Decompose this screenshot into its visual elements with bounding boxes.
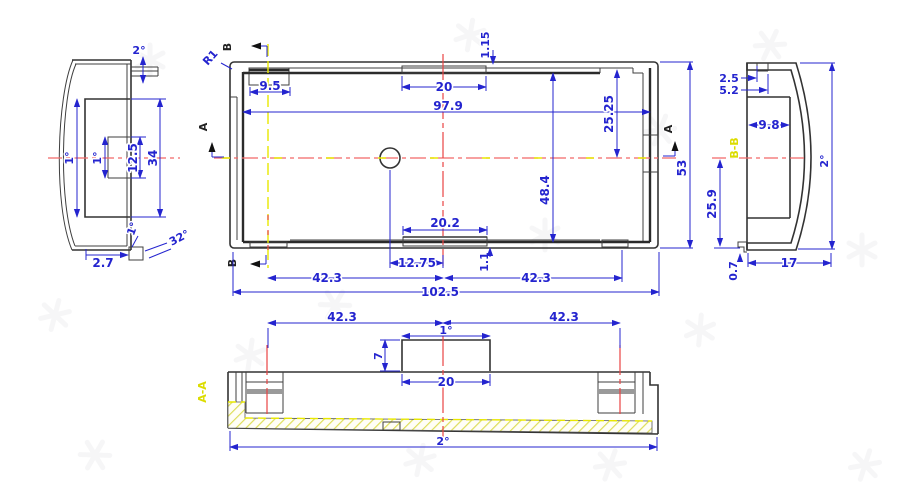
right-section-name-label: B-B (728, 137, 741, 158)
main-notch-width-label: 9.5 (259, 79, 280, 93)
main-overall-width-label: 102.5 (421, 285, 459, 299)
section-block-draft-label: 1° (439, 324, 452, 337)
main-boss-left-label: 42.3 (312, 271, 342, 285)
section-a-a-view: A-A 42.3 42.3 1° 7 20 2° (196, 310, 658, 451)
left-tab-width-label: 2.7 (92, 256, 113, 270)
section-block-width-label: 20 (438, 375, 455, 389)
section-boss-left-label: 42.3 (327, 310, 357, 324)
section-base-draft-label: 2° (436, 435, 449, 448)
main-section-a-right-label: A (662, 124, 675, 133)
section-left-wall (228, 372, 242, 403)
main-top-slot-label: 20 (436, 80, 453, 94)
section-name-label: A-A (196, 381, 209, 403)
drawing-canvas: 2° 1° 1° 12.5 34 1° 32° 2.7 (0, 0, 900, 500)
left-inner-draft-label: 1° (91, 151, 104, 164)
main-inner-width-label: 97.9 (433, 99, 463, 113)
right-hatched-shell (747, 63, 811, 250)
main-overall-height-ext (660, 62, 693, 248)
main-overall-height-label: 53 (675, 160, 689, 177)
section-block-height-label: 7 (372, 352, 385, 360)
main-corner-radius-label: R1 (200, 47, 220, 68)
main-half-height-label: 25.25 (602, 95, 616, 133)
main-ledge-thickness-label: 1.15 (479, 31, 492, 58)
left-bottom-angle-leaders (145, 243, 171, 258)
right-bottom-hook (738, 242, 747, 252)
left-pocket-height-label: 12.5 (126, 143, 140, 173)
section-left-boss-band (246, 389, 283, 394)
left-top-angle-label: 2° (132, 44, 145, 57)
main-tab-offset-label: 1.1 (478, 252, 491, 272)
right-pocket-depth-label: 9.8 (758, 118, 779, 132)
section-center-block (402, 340, 490, 371)
main-section-a-left-label: A (197, 122, 210, 131)
main-boss-right-label: 42.3 (521, 271, 551, 285)
right-section-view: 2.5 5.2 9.8 B-B 25.9 2° 17 0.7 (705, 63, 835, 281)
right-notch-offset-label: 5.2 (719, 84, 739, 97)
right-lower-height-label: 25.9 (705, 189, 719, 219)
main-left-wall (230, 97, 237, 240)
left-opening-height-label: 34 (146, 150, 160, 167)
left-bottom-angle-label: 32° (167, 227, 191, 248)
main-right-step (600, 68, 643, 73)
left-outer-draft-label: 1° (63, 151, 76, 164)
section-right-boss-band (598, 389, 635, 394)
section-boss-right-label: 42.3 (549, 310, 579, 324)
main-inner-height-label: 48.4 (538, 175, 552, 205)
section-hatch-strip (228, 402, 652, 433)
right-base-width-label: 17 (781, 256, 798, 270)
drawing-page: 2° 1° 1° 12.5 34 1° 32° 2.7 (0, 0, 900, 500)
left-side-view: 2° 1° 1° 12.5 34 1° 32° 2.7 (48, 44, 192, 270)
main-bottom-slot-label: 20.2 (430, 216, 460, 230)
main-top-view: B B A A R1 9.5 20 1.15 97.9 25.25 48.4 5… (197, 31, 693, 299)
section-hatch-hidden-edge (228, 402, 652, 421)
right-wall-draft-label: 2° (818, 154, 831, 167)
main-hole-offset-label: 12.75 (398, 256, 436, 270)
main-section-b-top-label: B (221, 43, 234, 51)
right-lip-thickness-label: 0.7 (727, 261, 740, 281)
